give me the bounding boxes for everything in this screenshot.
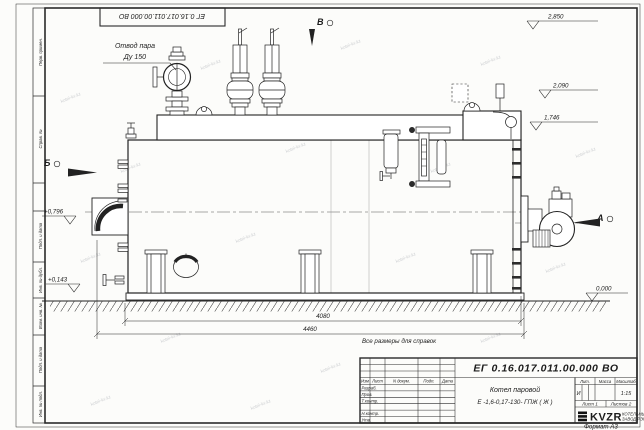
dimension-4460-text: 4460	[303, 326, 317, 333]
steam-outlet-valve	[153, 47, 191, 115]
safety-valve	[227, 28, 253, 115]
col-data: Дата	[441, 378, 454, 383]
elevation-mark	[530, 122, 598, 130]
elevation-mark	[527, 21, 598, 29]
burner	[521, 187, 575, 247]
logo-sub2: ЗАВОД РЭП	[622, 417, 644, 422]
doc-number-rotated: ЕГ 0.16.017.011.00.000 ВО	[118, 12, 205, 19]
leader-line	[103, 63, 176, 70]
view-marker-b-circle	[54, 161, 60, 167]
elevation-0143: +0,143	[48, 277, 68, 284]
view-arrow-b	[68, 169, 97, 177]
col-izm: Изм	[361, 378, 369, 383]
litera-value: И	[577, 391, 581, 397]
row-utv: Утв.	[362, 418, 372, 423]
safety-valve	[259, 28, 285, 115]
boiler-elevation-view	[85, 28, 600, 300]
dimension-4080-text: 4080	[316, 313, 330, 320]
doc-number: ЕГ 0.16.017.011.00.000 ВО	[473, 363, 618, 375]
elevation-mark	[46, 284, 80, 292]
elevation-mark	[539, 90, 598, 98]
sheets-cell: Листов 2	[610, 402, 632, 407]
kvzr-logo: KVZR КОТЕЛЬНЫЙ ЗАВОД РЭП	[578, 412, 644, 424]
view-arrow-a	[573, 219, 600, 227]
margin-label-sprav-no: Справ. №	[38, 129, 43, 148]
manhole	[174, 254, 199, 278]
top-left-fitting	[126, 123, 136, 138]
row-nkontr: Н.контр.	[362, 411, 380, 416]
elevation-mark	[42, 216, 76, 224]
scale-value: 1:15	[621, 391, 632, 397]
row-prov: Пров.	[362, 392, 373, 397]
view-marker-v: В	[317, 17, 324, 27]
scale-header: Масштаб	[616, 379, 636, 384]
row-razrab: Разраб.	[362, 386, 377, 391]
view-marker-b: Б	[44, 158, 51, 168]
margin-label-podp-data-lower: Подп. и дата	[38, 346, 43, 373]
title-block-text: ЕГ 0.16.017.011.00.000 ВО Котел паровой …	[361, 363, 644, 430]
view-arrow-v	[309, 29, 315, 46]
row-tkontr: Т.контр.	[362, 398, 379, 403]
col-list: Лист	[371, 378, 383, 383]
margin-label-vzam-inv: Взам. инв. №	[38, 303, 43, 329]
elevation-mark	[586, 293, 628, 301]
elevation-2850: 2,850	[547, 14, 564, 21]
col-dokum: N докум.	[393, 378, 410, 383]
elevation-2090: 2,090	[552, 83, 569, 90]
margin-label-inv-dubl: Инв. № дубл.	[38, 267, 43, 293]
lifting-lug	[196, 106, 212, 115]
elevation-zero: 0,000	[596, 286, 612, 293]
elevation-0796: +0,796	[44, 209, 64, 216]
logo-text: KVZR	[590, 412, 622, 424]
reference-note: Все размеры для справок	[362, 338, 437, 345]
margin-label-perv-primen: Перв. примен.	[38, 38, 43, 66]
view-marker-a-circle	[607, 216, 613, 222]
steam-outlet-label: Отвод пара	[115, 42, 155, 50]
lit-header: Лит.	[579, 379, 590, 384]
smoke-box	[92, 198, 128, 235]
steam-outlet-dn-label: Ду 150	[123, 54, 146, 61]
sheet-cell: Лист 1	[581, 402, 598, 407]
view-marker-v-circle	[327, 20, 333, 26]
base-frame	[126, 293, 524, 300]
elevation-1746: 1,746	[544, 115, 560, 122]
margin-label-inv-podl: Инв. № подл.	[38, 391, 43, 417]
product-code: Е -1,6-0,17-130- ГПЖ ( Ж )	[477, 399, 552, 406]
boiler-shell	[128, 140, 521, 293]
drawing-sheet: kotel-kv.kz kotel-kv.kz kotel-kv.kz kote…	[0, 0, 644, 430]
margin-labels: Перв. примен. Справ. № Подп. и дата Инв.…	[38, 38, 43, 417]
margin-label-podp-data-upper: Подп. и дата	[38, 222, 43, 249]
ground	[42, 301, 610, 312]
product-name: Котел паровой	[490, 386, 540, 394]
mass-header: Масса	[599, 379, 612, 384]
col-podp: Подп.	[423, 378, 434, 383]
format-note: Формат А3	[584, 424, 618, 430]
